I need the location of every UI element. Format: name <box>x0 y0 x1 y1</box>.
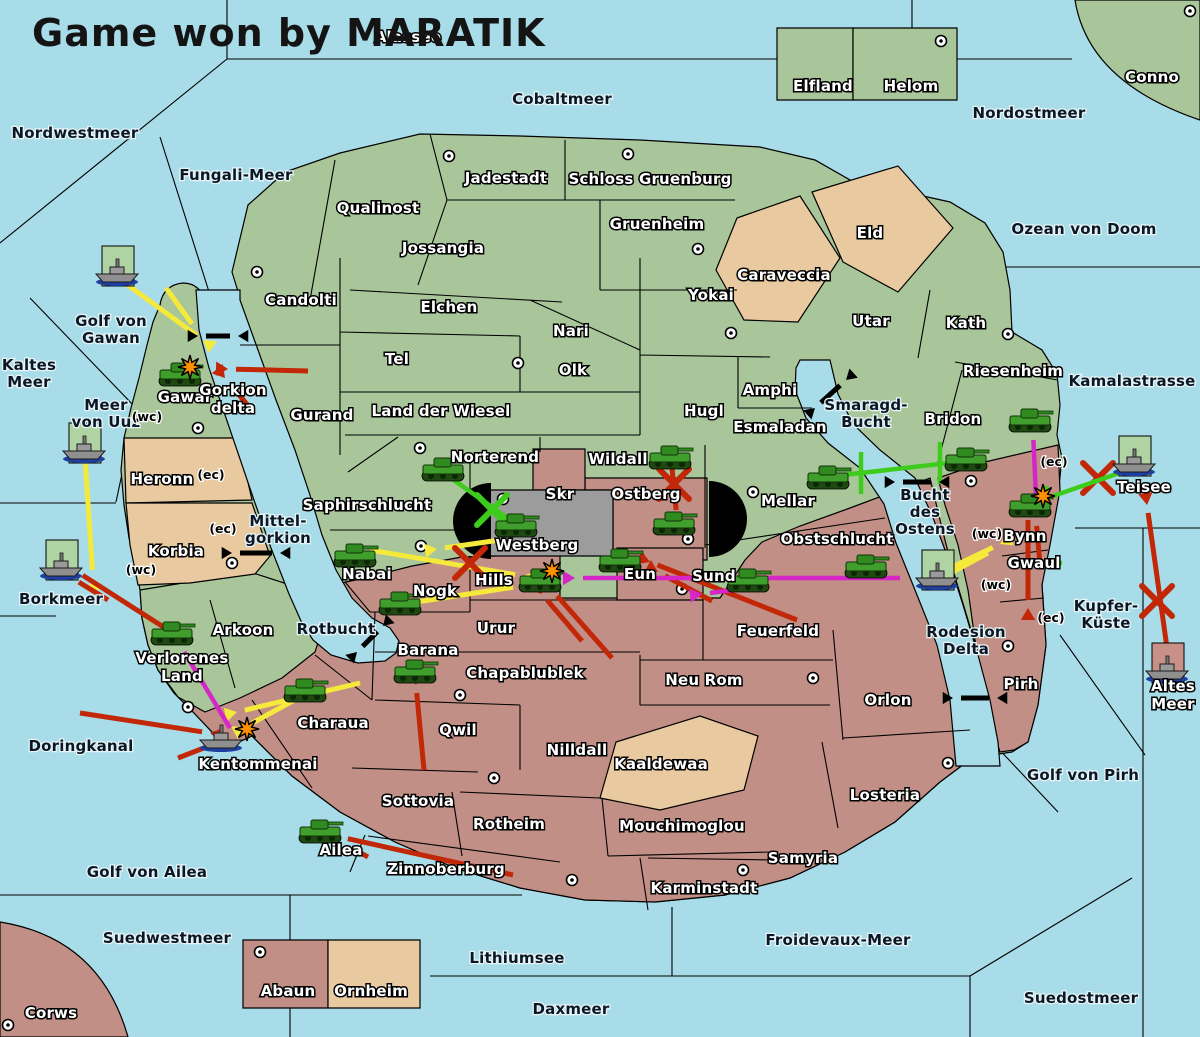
sea-label: Borkmeer <box>19 590 103 608</box>
supply-center-dot <box>1003 641 1014 652</box>
region-label: Nogk <box>413 582 458 600</box>
region-label: Ailea <box>319 841 362 859</box>
region-label: Amphi <box>743 381 798 399</box>
coast-marker: (ec) <box>209 521 236 536</box>
coast-marker: (wc) <box>981 577 1011 592</box>
sea-label: Doringkanal <box>29 737 134 755</box>
region-label: Corws <box>25 1004 78 1022</box>
region-label: Heronn <box>131 470 194 488</box>
region-label: Orlon <box>864 691 911 709</box>
supply-center-dot <box>183 702 194 713</box>
sea-label: Rotbucht <box>297 620 376 638</box>
region-label: Conno <box>1125 68 1179 86</box>
region-label: Samyria <box>768 849 838 867</box>
sea-label: Froidevaux-Meer <box>765 931 911 949</box>
region-label: Qualinost <box>337 199 420 217</box>
region-label: Caraveccia <box>737 266 831 284</box>
region-label: Kath <box>946 314 986 332</box>
sea-label: Fungali-Meer <box>179 166 293 184</box>
region-label: Saphirschlucht <box>303 496 432 514</box>
supply-center-dot <box>444 151 455 162</box>
supply-center-dot <box>513 358 524 369</box>
region-label: Utar <box>852 312 890 330</box>
supply-center-dot <box>748 487 759 498</box>
region-label: Ostberg <box>611 485 680 503</box>
sea-label: Kamalastrasse <box>1068 372 1195 390</box>
supply-center-dot <box>455 690 466 701</box>
region-label: Candolti <box>265 291 337 309</box>
region-label: Barana <box>397 641 458 659</box>
sea-label: Suedwestmeer <box>103 929 232 947</box>
supply-center-dot <box>1003 329 1014 340</box>
region-label: Korbia <box>148 542 204 560</box>
region-label: Sottovia <box>382 792 454 810</box>
region-label: Gruenheim <box>610 215 705 233</box>
explosion-icon <box>235 717 259 741</box>
sea-label: Nordwestmeer <box>12 124 139 142</box>
region-label: Feuerfeld <box>737 622 819 640</box>
region-label: Gwaul <box>1007 554 1060 572</box>
map-title: Game won by MARATIK <box>32 11 546 55</box>
region-label: Sund <box>692 567 736 585</box>
sea-label: Mittel-gorkion <box>245 512 311 547</box>
supply-center-dot <box>255 947 266 958</box>
order-line <box>236 369 308 371</box>
explosion-icon <box>178 355 202 379</box>
coast-marker: (ec) <box>1040 454 1067 469</box>
coast-marker: (ec) <box>197 467 224 482</box>
sea-label: Kupfer-Küste <box>1074 597 1139 632</box>
explosion-icon <box>540 559 564 583</box>
region-label: Neu Rom <box>665 671 743 689</box>
sea-label: Suedostmeer <box>1024 989 1139 1007</box>
map-canvas: NordwestmeerCobaltmeerNordostmeerFungali… <box>0 0 1200 1037</box>
region-label: Schloss Gruenburg <box>568 170 731 188</box>
supply-center-dot <box>3 1020 14 1031</box>
sea-label: Golf von Pirh <box>1027 766 1139 784</box>
sea-label: Daxmeer <box>532 1000 609 1018</box>
supply-center-dot <box>943 758 954 769</box>
region-label: Qwil <box>439 721 477 739</box>
region-label: Westberg <box>496 536 579 554</box>
region-label: Nabai <box>342 565 392 583</box>
region-label: Teisee <box>1117 478 1171 496</box>
region-label: Rotheim <box>473 815 545 833</box>
supply-center-dot <box>227 558 238 569</box>
region-label: Elchen <box>420 298 477 316</box>
region-label: Wildall <box>588 450 647 468</box>
region-label: Charaua <box>297 714 369 732</box>
region-label: Abaun <box>261 982 316 1000</box>
region-shape-skr <box>533 449 585 490</box>
region-label: Zinnoberburg <box>387 860 505 878</box>
coast-marker: (wc) <box>132 409 162 424</box>
supply-center-dot <box>1185 6 1196 17</box>
supply-center-dot <box>489 773 500 784</box>
region-label: Skr <box>546 485 575 503</box>
region-label: Nari <box>553 322 589 340</box>
region-label: Jadestadt <box>464 169 548 187</box>
region-label: Obstschlucht <box>780 530 893 548</box>
region-label: Urur <box>477 619 516 637</box>
region-label: Helom <box>884 77 939 95</box>
region-label: Mouchimoglou <box>619 817 745 835</box>
region-label: AltesMeer <box>1151 677 1195 713</box>
region-label: Riesenheim <box>963 362 1063 380</box>
sea-label: Nordostmeer <box>973 104 1086 122</box>
region-label: Land der Wiesel <box>372 402 511 420</box>
supply-center-dot <box>738 865 749 876</box>
coast-marker: (ec) <box>1037 610 1064 625</box>
region-label: Norterend <box>451 448 539 466</box>
sea-label: Lithiumsee <box>469 949 564 967</box>
region-label: Arkoon <box>212 621 273 639</box>
region-label: Tel <box>385 350 409 368</box>
region-label: Jossangia <box>401 239 484 257</box>
region-label: Eun <box>624 565 656 583</box>
sea-label: Ozean von Doom <box>1011 220 1156 238</box>
coast-marker: (wc) <box>972 526 1002 541</box>
supply-center-dot <box>567 875 578 886</box>
supply-center-dot <box>936 36 947 47</box>
region-label: Hills <box>475 571 513 589</box>
region-label: Yokai <box>687 286 734 304</box>
supply-center-dot <box>726 328 737 339</box>
supply-center-dot <box>966 476 977 487</box>
region-label: Losteria <box>850 786 920 804</box>
region-label: Elfland <box>793 77 853 95</box>
sea-label: Golf von Ailea <box>87 863 207 881</box>
game-map-screenshot: NordwestmeerCobaltmeerNordostmeerFungali… <box>0 0 1200 1037</box>
region-label: Pirh <box>1003 675 1038 693</box>
region-label: Hugl <box>684 402 724 420</box>
region-label: Bridon <box>925 410 982 428</box>
region-label: Olk <box>559 361 588 379</box>
supply-center-dot <box>623 149 634 160</box>
region-label: Chapablublek <box>466 664 584 682</box>
region-label: Mellar <box>761 492 816 510</box>
sea-label: Golf vonGawan <box>75 312 147 347</box>
sea-label: KaltesMeer <box>2 356 56 391</box>
explosion-icon <box>1031 484 1055 508</box>
region-label: Ornheim <box>334 982 408 1000</box>
region-label: Gurand <box>290 406 353 424</box>
region-label: Esmaladan <box>733 418 827 436</box>
region-label: Karminstadt <box>651 879 758 897</box>
coast-marker: (wc) <box>126 562 156 577</box>
supply-center-dot <box>193 423 204 434</box>
supply-center-dot <box>415 443 426 454</box>
supply-center-dot <box>808 673 819 684</box>
region-label: Kaaldewaa <box>614 755 708 773</box>
supply-center-dot <box>693 244 704 255</box>
region-label: Bynn <box>1003 527 1046 545</box>
sea-label: Cobaltmeer <box>512 90 612 108</box>
supply-center-dot <box>252 267 263 278</box>
region-label: Kentommenai <box>198 755 317 773</box>
region-label: Nilldall <box>547 741 608 759</box>
region-label: Eld <box>857 224 884 242</box>
